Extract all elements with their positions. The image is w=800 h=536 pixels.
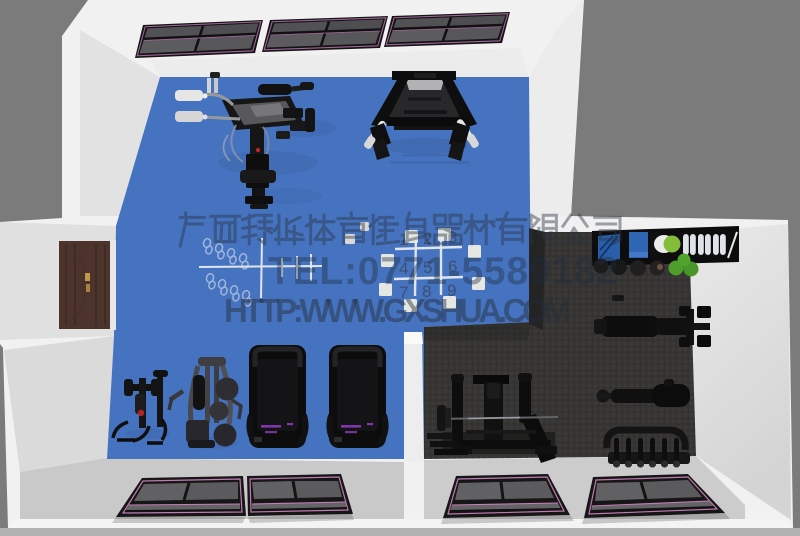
svg-text:HTTP:WWW.GXSHUA.COM: HTTP:WWW.GXSHUA.COM xyxy=(224,292,571,329)
svg-text:TEL:0771-5589182: TEL:0771-5589182 xyxy=(268,250,618,293)
